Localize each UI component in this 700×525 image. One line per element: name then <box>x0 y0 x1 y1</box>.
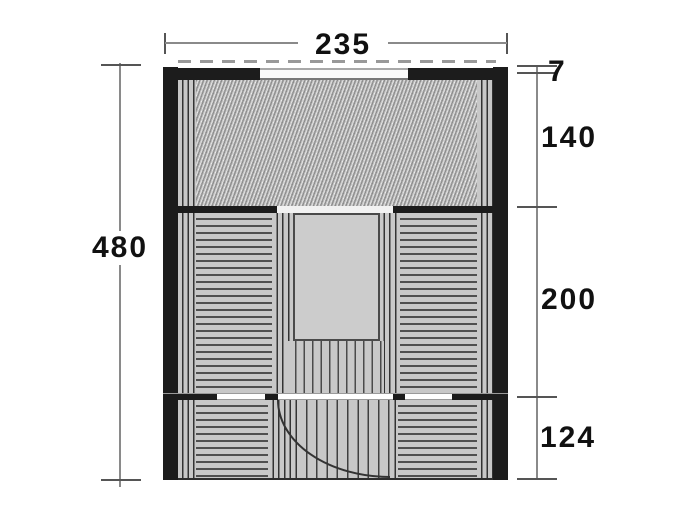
front-floor-strip-right <box>390 400 398 478</box>
right-dim-line <box>536 66 538 480</box>
right-dim-tick-4 <box>517 396 557 398</box>
main-wall-lining-left <box>178 213 196 393</box>
segment-label-124: 124 <box>540 423 596 453</box>
left-wall <box>163 67 178 480</box>
front-wall-lining-right <box>477 400 493 478</box>
top-wall-left-segment <box>163 68 260 80</box>
segment-label-140: 140 <box>541 123 597 153</box>
right-wall <box>493 67 508 480</box>
bottom-edge-line <box>178 478 493 480</box>
main-wall-lining-right <box>477 213 493 393</box>
left-dim-tick-bottom <box>101 479 141 481</box>
main-center-column <box>272 213 400 393</box>
terrace-wall-lining-left <box>178 80 196 206</box>
left-dim-tick-top <box>101 64 141 66</box>
segment-label-7: 7 <box>548 57 567 87</box>
right-dim-tick-5 <box>517 478 557 480</box>
front-floor-strip-left <box>268 400 297 478</box>
lower-wall-band <box>163 393 508 400</box>
center-platform-step-boards <box>288 341 384 393</box>
top-wall-right-segment <box>408 68 493 80</box>
front-bench-left <box>196 400 268 478</box>
floor-plan-drawing <box>163 67 508 480</box>
center-platform <box>293 213 380 341</box>
mid-wall-left-segment <box>163 206 277 213</box>
front-bench-right <box>398 400 477 478</box>
right-dim-tick-3 <box>517 206 557 208</box>
door-swing-floor-area <box>297 400 390 478</box>
segment-label-200: 200 <box>541 285 597 315</box>
mid-wall-right-segment <box>393 206 508 213</box>
main-bench-left <box>196 213 272 393</box>
roof-overhang-dashed-line <box>178 60 496 63</box>
terrace-wall-lining-right <box>477 80 493 206</box>
main-bench-right <box>400 213 477 393</box>
terrace-decking <box>196 80 477 208</box>
terrace-front-opening <box>260 68 408 80</box>
depth-dimension-label: 480 <box>88 231 152 265</box>
front-wall-lining-left <box>178 400 196 478</box>
left-dim-line <box>119 63 121 487</box>
width-dimension-label: 235 <box>298 28 388 62</box>
mid-wall-opening <box>277 206 393 213</box>
